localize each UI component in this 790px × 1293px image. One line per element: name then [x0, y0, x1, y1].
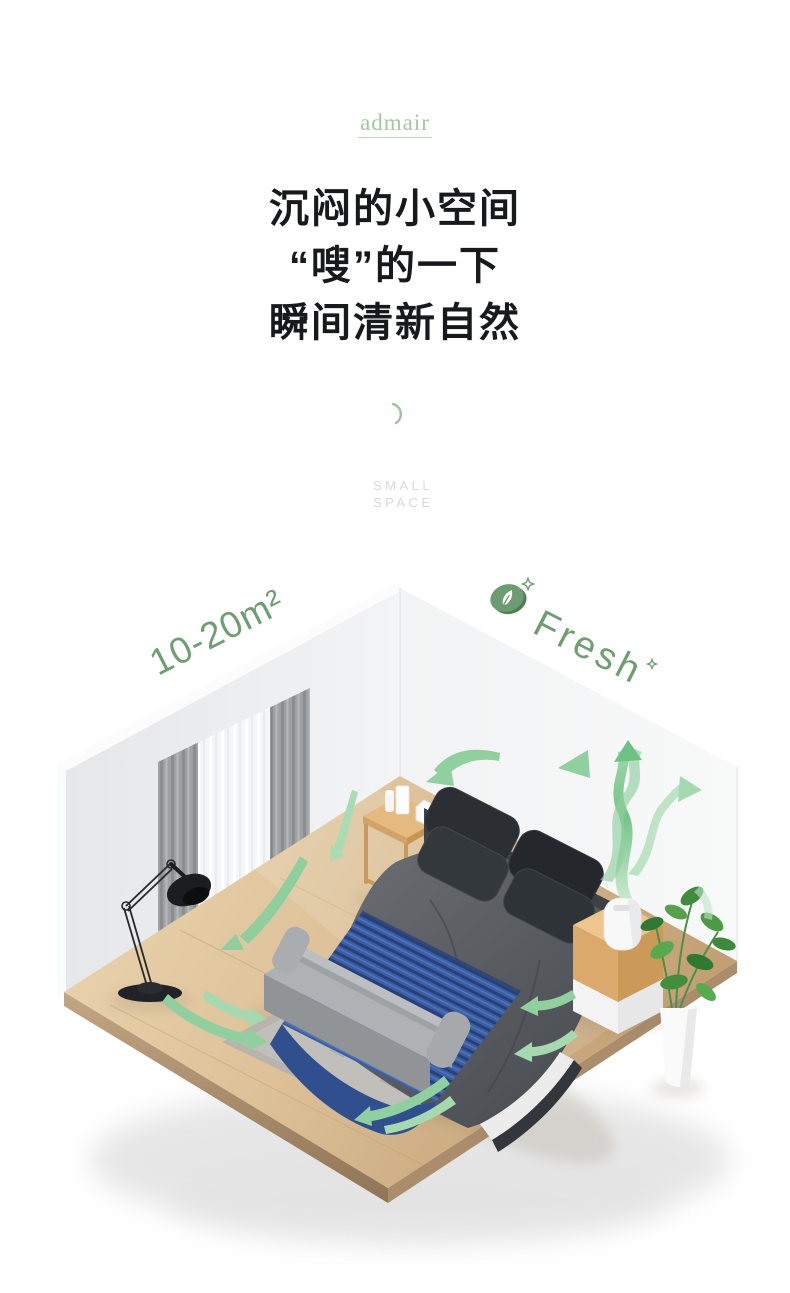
sparkle-icon: [523, 579, 534, 590]
air-purifier: [604, 898, 641, 950]
headline-line-1: 沉闷的小空间: [0, 181, 790, 238]
eyebrow-word-1: SMALL: [373, 477, 434, 494]
room-illustration: 10-20m² Fresh: [0, 540, 790, 1288]
brand-logo-text: admair: [358, 110, 432, 138]
brand-logo: admair: [0, 110, 790, 138]
headline-line-3: 瞬间清新自然: [0, 295, 790, 352]
eyebrow-label: SMALL SPACE: [373, 477, 434, 511]
headline-line-2: “嗖”的一下: [0, 238, 790, 295]
purifier-handle: [613, 905, 630, 911]
arc-divider-icon: [386, 401, 408, 427]
leaf-badge-icon: [487, 579, 531, 619]
page-title: 沉闷的小空间 “嗖”的一下 瞬间清新自然: [0, 181, 790, 352]
sparkle-icon-small: [648, 660, 657, 669]
eyebrow-word-2: SPACE: [373, 494, 434, 511]
